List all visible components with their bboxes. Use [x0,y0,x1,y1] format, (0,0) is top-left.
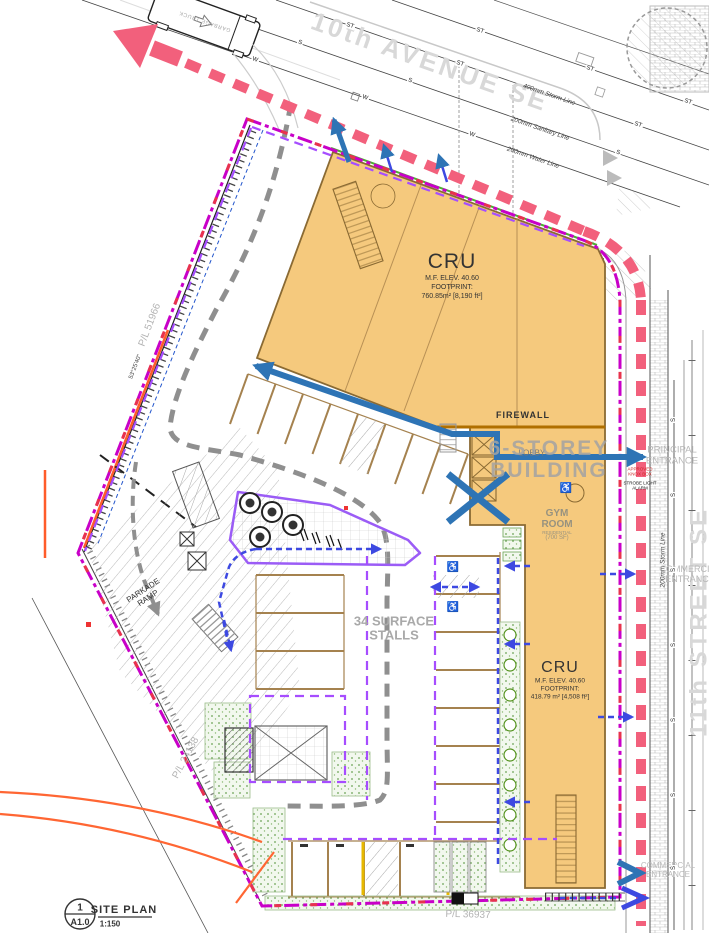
site-plan-drawing: 10th AVENUE SE 11th STREET SE 400mm Stor… [0,0,709,933]
fire-route-arrow-icon [113,24,158,68]
street-tree-icon [627,8,707,88]
site-plan-linework [0,0,709,933]
east-walkway-landscape [500,622,520,872]
enclosure-structure [225,728,253,772]
tree-island [230,492,420,565]
street-right-11th [592,6,709,933]
title-block-mark [65,899,152,929]
